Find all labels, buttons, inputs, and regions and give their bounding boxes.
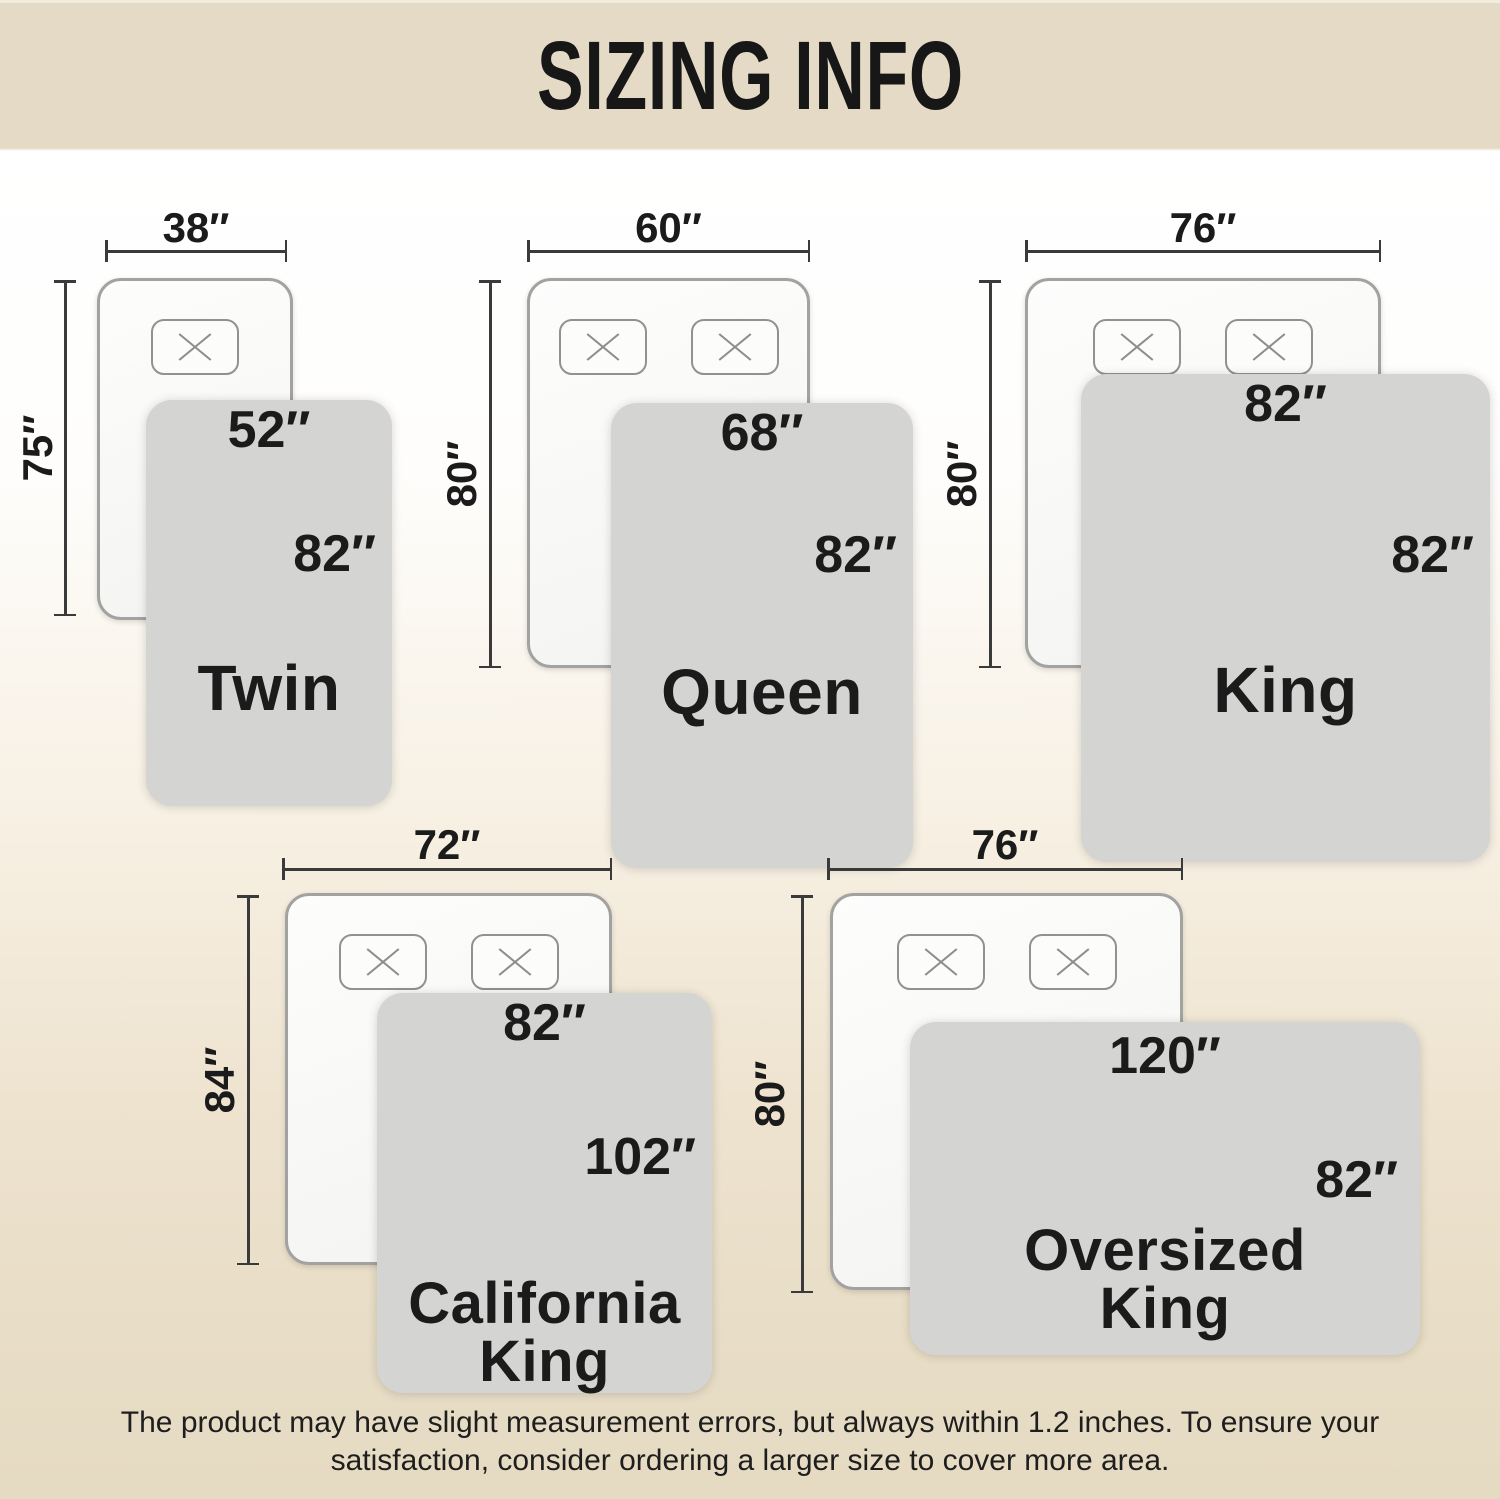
disclaimer-line2: satisfaction, consider ordering a larger… <box>0 1442 1500 1480</box>
pillow-x-icon <box>1095 321 1179 373</box>
pillow-x-icon <box>1031 936 1115 988</box>
blanket-width-label: 120″ <box>910 1028 1420 1084</box>
blanket: 120″ 82″ Oversized King <box>910 1022 1420 1355</box>
pillow-icon <box>559 319 647 375</box>
size-name-line2: King <box>377 1333 712 1391</box>
blanket-length-label: 82″ <box>814 527 897 583</box>
disclaimer: The product may have slight measurement … <box>0 1404 1500 1480</box>
pillow-x-icon <box>1227 321 1311 373</box>
page-title: SIZING INFO <box>537 20 964 132</box>
bed-width-dimension-line <box>105 240 287 262</box>
pillow-icon <box>151 319 239 375</box>
bed-length-dimension-line <box>479 280 501 668</box>
size-name-line1: Queen <box>611 659 913 725</box>
pillow-row <box>530 281 807 375</box>
size-name-line1: King <box>1081 657 1490 723</box>
blanket-width-label: 82″ <box>377 995 712 1051</box>
pillow-icon <box>1029 934 1117 990</box>
bed-length-label: 84″ <box>198 1047 242 1114</box>
pillow-x-icon <box>561 321 645 373</box>
pillow-icon <box>1093 319 1181 375</box>
bed-length-dimension-line <box>54 280 76 616</box>
blanket-length-label: 102″ <box>584 1129 696 1185</box>
size-name-line1: California <box>377 1275 712 1333</box>
pillow-x-icon <box>693 321 777 373</box>
size-name: Twin <box>146 655 392 721</box>
pillow-icon <box>691 319 779 375</box>
blanket-width-label: 82″ <box>1081 376 1490 432</box>
bed-length-dimension-line <box>979 280 1001 668</box>
blanket: 82″ 102″ California King <box>377 993 712 1393</box>
size-name: Queen <box>611 659 913 725</box>
size-name-line1: Oversized <box>910 1222 1420 1280</box>
bed-width-dimension-line <box>827 858 1183 880</box>
blanket: 68″ 82″ Queen <box>611 403 913 868</box>
bed-length-label: 80″ <box>440 441 484 508</box>
size-name-line2: King <box>910 1280 1420 1338</box>
bed-length-dimension-line <box>237 895 259 1265</box>
pillow-row <box>833 896 1180 990</box>
header-band: SIZING INFO <box>0 0 1500 148</box>
blanket-length-label: 82″ <box>293 526 376 582</box>
bed-width-dimension-line <box>1025 240 1381 262</box>
pillow-x-icon <box>899 936 983 988</box>
pillow-x-icon <box>341 936 425 988</box>
sizing-infographic: SIZING INFO 38″ 75″ 52″ 82″ Twin <box>0 0 1500 1499</box>
blanket-width-label: 68″ <box>611 405 913 461</box>
pillow-x-icon <box>473 936 557 988</box>
bed-width-dimension-line <box>527 240 810 262</box>
pillow-icon <box>897 934 985 990</box>
size-name-line1: Twin <box>146 655 392 721</box>
bed-length-label: 80″ <box>748 1061 792 1128</box>
bed-width-dimension-line <box>282 858 612 880</box>
blanket: 82″ 82″ King <box>1081 374 1490 862</box>
pillow-x-icon <box>153 321 237 373</box>
pillow-icon <box>1225 319 1313 375</box>
blanket-width-label: 52″ <box>146 402 392 458</box>
disclaimer-line1: The product may have slight measurement … <box>0 1404 1500 1442</box>
bed-length-label: 80″ <box>940 441 984 508</box>
size-name: California King <box>377 1275 712 1391</box>
pillow-row <box>100 281 290 375</box>
blanket: 52″ 82″ Twin <box>146 400 392 806</box>
pillow-row <box>288 896 609 990</box>
blanket-length-label: 82″ <box>1315 1152 1398 1208</box>
blanket-length-label: 82″ <box>1391 527 1474 583</box>
bed-length-dimension-line <box>791 895 813 1293</box>
pillow-icon <box>471 934 559 990</box>
size-name: King <box>1081 657 1490 723</box>
pillow-icon <box>339 934 427 990</box>
pillow-row <box>1028 281 1378 375</box>
size-name: Oversized King <box>910 1222 1420 1338</box>
